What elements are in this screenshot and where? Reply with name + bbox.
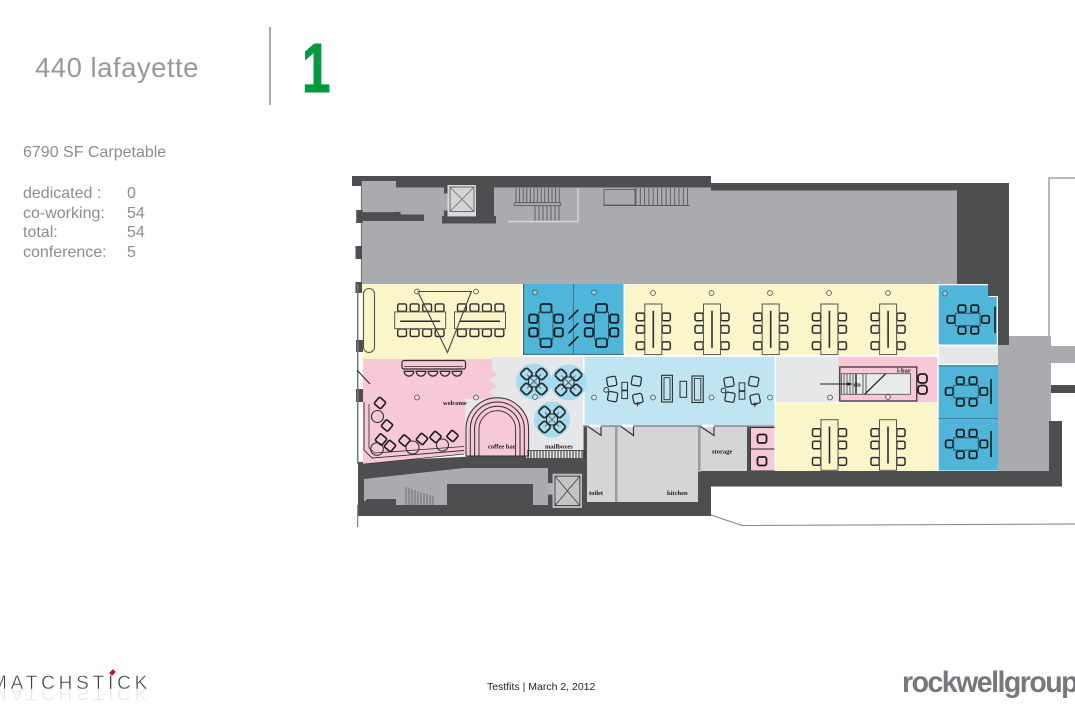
svg-text:i-bar: i-bar xyxy=(897,368,911,375)
svg-text:welcome: welcome xyxy=(443,400,467,407)
svg-text:mailboxes: mailboxes xyxy=(545,444,573,451)
svg-text:storage: storage xyxy=(712,449,732,456)
svg-text:toilet: toilet xyxy=(589,490,604,497)
svg-text:kitchen: kitchen xyxy=(667,490,688,497)
svg-text:coffee bar: coffee bar xyxy=(488,444,516,451)
svg-text:dn: dn xyxy=(854,382,862,389)
